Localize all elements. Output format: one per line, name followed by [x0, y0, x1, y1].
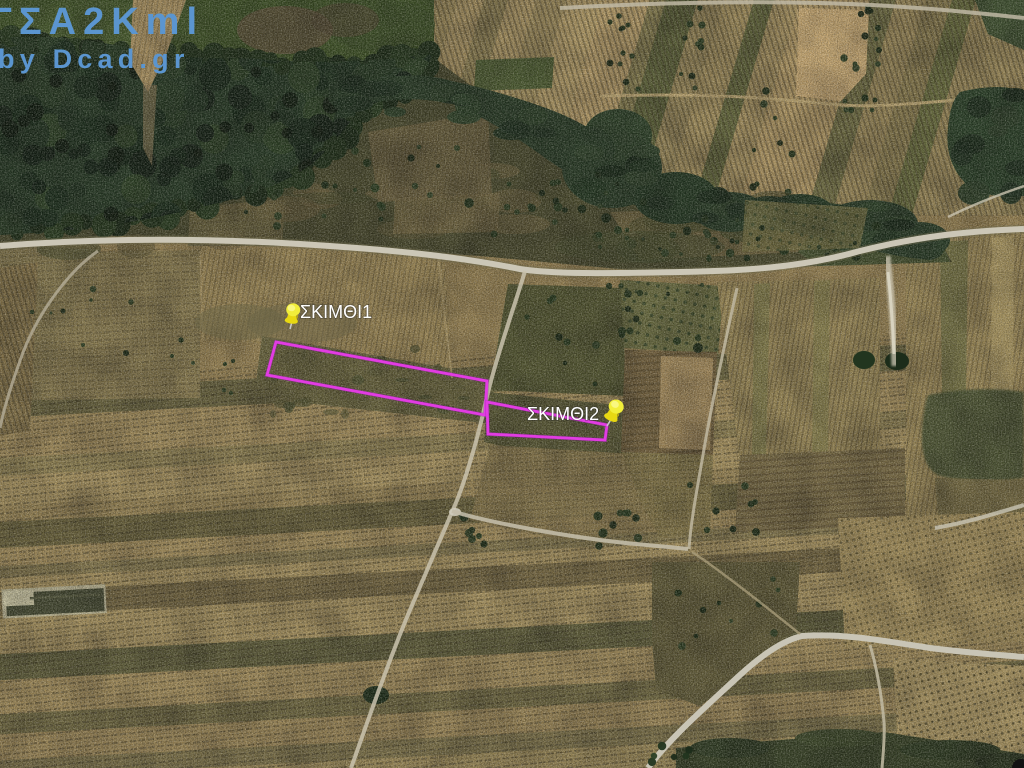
svg-text:ΣΚΙΜΘΙ1: ΣΚΙΜΘΙ1: [300, 302, 372, 322]
svg-text:ΓΣΑ2Kml: ΓΣΑ2Kml: [0, 1, 204, 43]
svg-text:ΣΚΙΜΘΙ2: ΣΚΙΜΘΙ2: [527, 404, 599, 424]
svg-text:by Dcad.gr: by Dcad.gr: [0, 44, 190, 74]
